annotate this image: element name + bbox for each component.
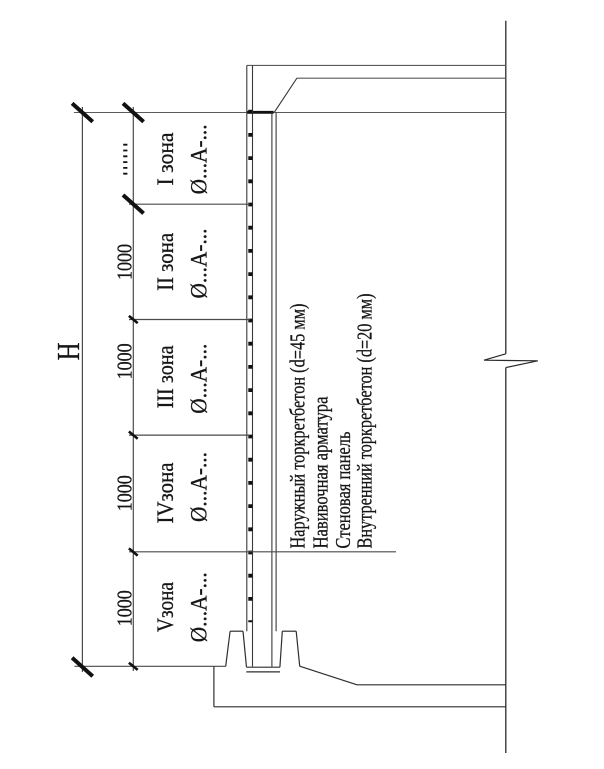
svg-text:Внутренний торкретбетон (d=20: Внутренний торкретбетон (d=20 мм) xyxy=(353,294,377,549)
svg-text:I зона: I зона xyxy=(153,132,179,186)
svg-text:Наружный торкретбетон (d=45 мм: Наружный торкретбетон (d=45 мм) xyxy=(286,304,310,549)
svg-text:1000: 1000 xyxy=(113,475,137,511)
svg-text:1000: 1000 xyxy=(113,244,137,280)
svg-text:1000: 1000 xyxy=(113,343,137,379)
svg-text:Ø...А-...: Ø...А-... xyxy=(187,452,212,522)
svg-text:Стеновая панель: Стеновая панель xyxy=(331,431,355,548)
svg-text:Ø...А-...: Ø...А-... xyxy=(187,344,212,414)
svg-text:IVзона: IVзона xyxy=(153,462,179,524)
svg-text:1000: 1000 xyxy=(113,590,137,626)
svg-text:II зона: II зона xyxy=(153,232,179,290)
svg-text:Ø...А-...: Ø...А-... xyxy=(187,229,212,299)
svg-text:Ø...А-...: Ø...А-... xyxy=(187,124,212,194)
svg-text:Навивочная арматура: Навивочная арматура xyxy=(309,396,333,548)
svg-text:III зона: III зона xyxy=(153,345,179,408)
svg-text:Vзона: Vзона xyxy=(153,582,179,632)
svg-text:Ø...А-...: Ø...А-... xyxy=(187,572,212,642)
svg-text:H: H xyxy=(50,342,86,360)
